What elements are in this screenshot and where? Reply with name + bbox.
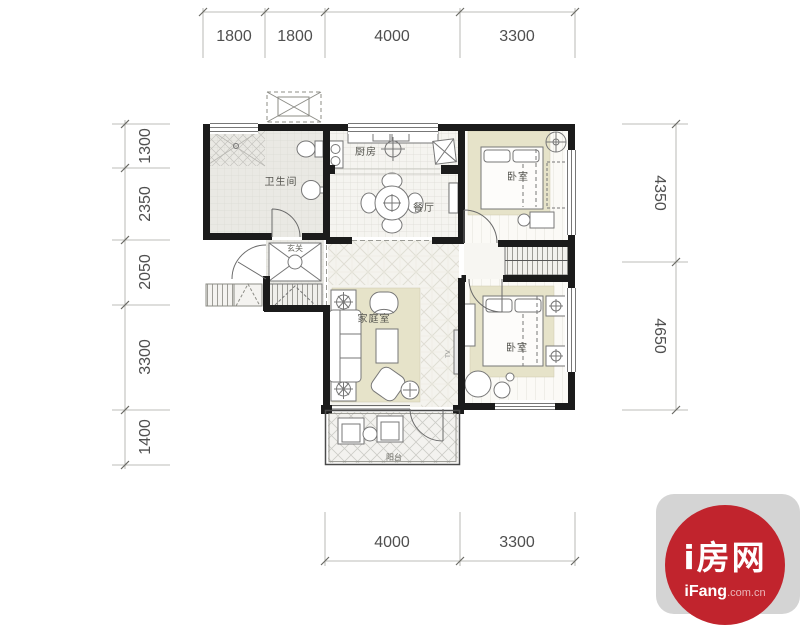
ifang-logo-domain: iFang.com.cn — [665, 583, 785, 601]
ifang-logo[interactable]: i房网 iFang.com.cn — [656, 494, 800, 614]
room-label-balcony: 阳台 — [386, 452, 402, 462]
dim-top-2: 1800 — [277, 28, 313, 45]
dim-top-3: 4000 — [374, 28, 410, 45]
sofa — [329, 310, 361, 382]
dim-right-1: 4350 — [651, 175, 668, 211]
balcony-chair-right — [377, 416, 403, 442]
room-label-bedroom-bottom: 卧室 — [506, 341, 528, 354]
nightstand-upper — [546, 296, 566, 316]
desk-top-bedroom — [518, 212, 554, 228]
tv-label: TV — [446, 350, 452, 358]
dim-right-2: 4650 — [651, 318, 668, 354]
ac-platform-left — [206, 284, 262, 306]
coffee-table — [376, 329, 398, 363]
room-label-dining: 餐厅 — [413, 201, 435, 214]
fridge — [433, 139, 457, 164]
ifang-logo-circle: i房网 iFang.com.cn — [665, 505, 785, 625]
room-label-entry: 玄关 — [287, 243, 303, 253]
ceiling-fan — [546, 132, 566, 152]
dresser — [464, 304, 475, 346]
stove — [328, 141, 343, 168]
room-label-family-room: 家庭室 — [358, 312, 391, 325]
dim-bottom-2: 3300 — [499, 534, 535, 551]
ac-platform-top — [267, 92, 321, 122]
front-door-arc — [232, 245, 266, 279]
entry-closet — [268, 284, 322, 306]
dim-top-1: 1800 — [216, 28, 252, 45]
balcony-chair-left — [338, 418, 364, 444]
dim-left-3: 2050 — [137, 254, 154, 290]
dim-bottom-1: 4000 — [374, 534, 410, 551]
dim-left-1: 1300 — [137, 128, 154, 164]
dim-top-4: 3300 — [499, 28, 535, 45]
room-label-kitchen: 厨房 — [355, 145, 377, 158]
ifang-logo-name: i房网 — [665, 531, 785, 579]
nightstand-lower — [546, 346, 566, 366]
balcony-table — [363, 427, 377, 441]
bed-bottom — [483, 296, 543, 366]
wardrobe — [505, 246, 568, 275]
room-label-bathroom: 卫生间 — [265, 175, 298, 188]
dim-left-2: 2350 — [137, 186, 154, 222]
side-table — [401, 381, 419, 399]
dim-left-4: 3300 — [137, 339, 154, 375]
dim-left-5: 1400 — [137, 419, 154, 455]
room-label-bedroom-top: 卧室 — [507, 170, 529, 183]
toilet — [297, 141, 323, 157]
armchair-top — [370, 292, 398, 314]
dining-cabinet — [449, 183, 458, 213]
